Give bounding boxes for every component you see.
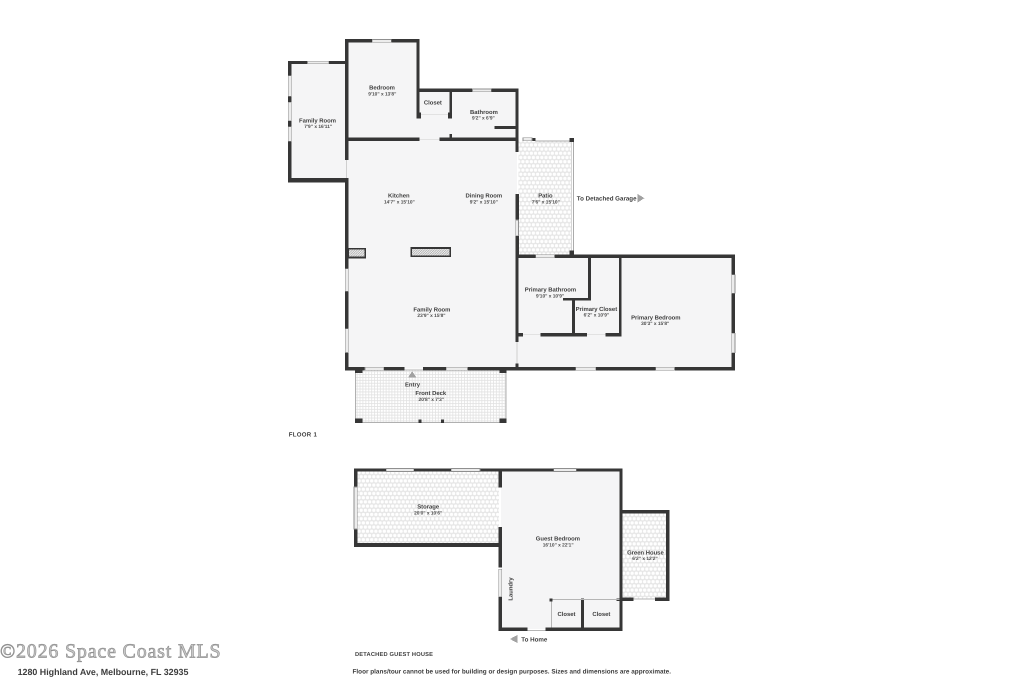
svg-text:Entry: Entry bbox=[405, 381, 421, 388]
svg-text:Family Room: Family Room bbox=[299, 118, 336, 125]
svg-text:Primary Closet: Primary Closet bbox=[576, 306, 618, 313]
svg-text:1280 Highland Ave, Melbourne,: 1280 Highland Ave, Melbourne, FL 32935 bbox=[18, 667, 189, 677]
svg-text:7'9" x 16'11": 7'9" x 16'11" bbox=[304, 124, 332, 130]
svg-text:Primary Bedroom: Primary Bedroom bbox=[631, 314, 680, 321]
svg-text:Laundry: Laundry bbox=[508, 577, 515, 601]
svg-text:30'3" x 15'8": 30'3" x 15'8" bbox=[641, 321, 669, 327]
svg-text:Guest Bedroom: Guest Bedroom bbox=[536, 536, 580, 543]
svg-text:9'10" x 13'8": 9'10" x 13'8" bbox=[368, 92, 396, 98]
svg-text:Patio: Patio bbox=[538, 192, 553, 199]
svg-text:20'0" x 10'6": 20'0" x 10'6" bbox=[414, 511, 442, 517]
svg-text:Closet: Closet bbox=[557, 611, 575, 618]
svg-text:14'7" x 15'10": 14'7" x 15'10" bbox=[384, 199, 415, 205]
svg-text:Bedroom: Bedroom bbox=[369, 84, 395, 91]
svg-text:DETACHED GUEST HOUSE: DETACHED GUEST HOUSE bbox=[355, 652, 433, 658]
svg-text:9'2" x 6'9": 9'2" x 6'9" bbox=[472, 115, 495, 121]
svg-text:16'10" x 22'1": 16'10" x 22'1" bbox=[543, 543, 574, 549]
svg-text:Dining Room: Dining Room bbox=[465, 192, 502, 199]
svg-text:Bathroom: Bathroom bbox=[470, 109, 498, 116]
svg-text:To Detached Garage: To Detached Garage bbox=[577, 196, 637, 203]
svg-text:Kitchen: Kitchen bbox=[388, 192, 410, 199]
svg-text:9'10" x 10'9": 9'10" x 10'9" bbox=[536, 293, 564, 299]
svg-text:Front Deck: Front Deck bbox=[415, 390, 446, 397]
svg-text:23'9" x 15'8": 23'9" x 15'8" bbox=[417, 313, 445, 319]
svg-text:6'2" x 12'2": 6'2" x 12'2" bbox=[632, 556, 658, 562]
svg-text:Family Room: Family Room bbox=[413, 306, 450, 313]
svg-text:Primary Bathroom: Primary Bathroom bbox=[525, 286, 576, 293]
svg-text:FLOOR 1: FLOOR 1 bbox=[289, 431, 318, 438]
svg-text:©2026 Space Coast MLS: ©2026 Space Coast MLS bbox=[0, 641, 221, 663]
svg-text:Green House: Green House bbox=[627, 549, 664, 556]
svg-text:Closet: Closet bbox=[592, 611, 610, 618]
svg-text:Storage: Storage bbox=[417, 504, 440, 511]
svg-text:20'8" x 7'3": 20'8" x 7'3" bbox=[419, 397, 445, 403]
svg-text:Closet: Closet bbox=[424, 99, 442, 106]
svg-text:Floor plans/tour cannot be use: Floor plans/tour cannot be used for buil… bbox=[353, 668, 672, 675]
svg-text:6'2" x 10'9": 6'2" x 10'9" bbox=[584, 313, 610, 319]
svg-text:9'2" x 15'10": 9'2" x 15'10" bbox=[470, 199, 498, 205]
svg-text:7'6" x 15'10": 7'6" x 15'10" bbox=[532, 199, 560, 205]
svg-text:To Home: To Home bbox=[521, 637, 548, 644]
